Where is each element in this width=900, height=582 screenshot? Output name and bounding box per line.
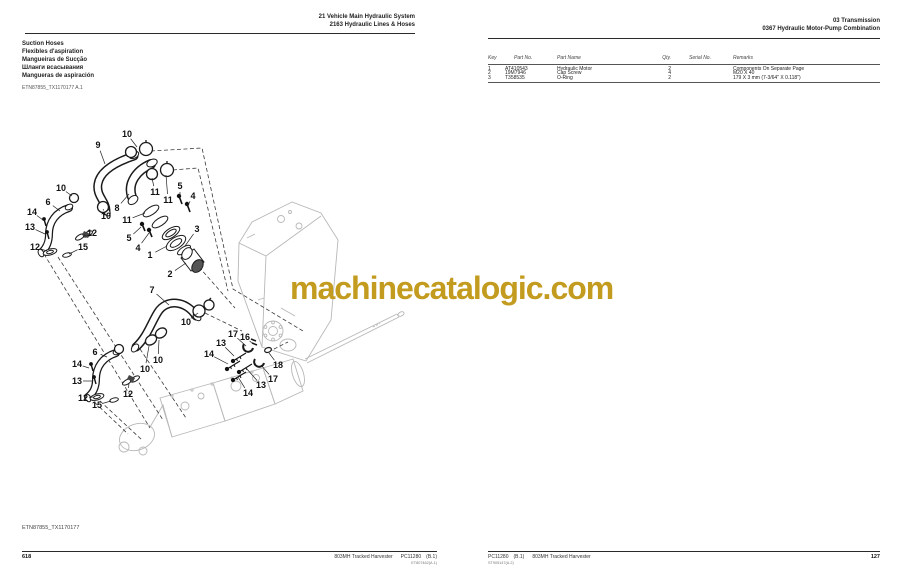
callout-leader bbox=[166, 175, 168, 194]
right-page-number: 127 bbox=[488, 554, 880, 560]
callout-number: 3 bbox=[194, 224, 199, 234]
callout-number: 7 bbox=[149, 285, 154, 295]
cell-remarks: 179 X 3 mm (7-3/64" X 0.118") bbox=[729, 76, 880, 81]
footer-model: 803MH Tracked Harvester bbox=[334, 554, 392, 560]
header-rule bbox=[25, 33, 415, 34]
callout-number: 10 bbox=[101, 211, 111, 221]
right-footer-subref: ST905147(A.2) bbox=[488, 561, 514, 565]
callout-leader bbox=[35, 230, 45, 234]
callout-leader bbox=[37, 216, 43, 220]
parts-table-rows: 1AT410543Hydraulic Motor2Components On S… bbox=[488, 64, 880, 83]
callout-leader bbox=[155, 246, 167, 252]
figure-title-ru: Шланги всасывания bbox=[22, 64, 94, 72]
footer-revision: (B.1) bbox=[426, 554, 437, 560]
callout-number: 10 bbox=[122, 129, 132, 139]
callout-number: 16 bbox=[240, 332, 250, 342]
callout-number: 13 bbox=[256, 380, 266, 390]
left-footer-rule bbox=[22, 551, 437, 552]
left-footer-line: 803MH Tracked HarvesterPC11280(B.1) bbox=[22, 554, 437, 560]
callout-number: 15 bbox=[78, 242, 88, 252]
callout-number: 17 bbox=[228, 329, 238, 339]
figure-title-fr: Flexibles d'aspiration bbox=[22, 48, 94, 56]
callout-number: 9 bbox=[95, 140, 100, 150]
callout-number: 11 bbox=[122, 215, 132, 225]
callout-leader bbox=[185, 234, 194, 246]
watermark: machinecatalogic.com bbox=[290, 270, 613, 307]
callout-number: 12 bbox=[123, 389, 133, 399]
callout-number: 14 bbox=[27, 207, 37, 217]
callout-leader bbox=[142, 233, 149, 243]
callout-leader bbox=[131, 139, 137, 147]
col-remarks: Remarks bbox=[729, 55, 880, 61]
callout-leader bbox=[175, 263, 186, 271]
fittings-and-fasteners bbox=[42, 195, 272, 403]
header-rule bbox=[488, 38, 880, 39]
callout-number: 10 bbox=[56, 183, 66, 193]
figure-reference-bottom: ETN87855_TX1170177 bbox=[22, 525, 79, 531]
parts-table: Key Part No. Part Name Qty. Serial No. R… bbox=[488, 55, 880, 83]
callout-number: 13 bbox=[72, 376, 82, 386]
callout-leader bbox=[83, 366, 89, 368]
right-footer-rule bbox=[488, 551, 880, 552]
subsection-title: 0367 Hydraulic Motor-Pump Combination bbox=[488, 25, 880, 33]
figure-title-es: Mangueras de aspiración bbox=[22, 72, 94, 80]
right-page-header: 03 Transmission 0367 Hydraulic Motor-Pum… bbox=[488, 17, 880, 33]
col-part-no: Part No. bbox=[505, 55, 557, 61]
callout-leader bbox=[158, 340, 159, 354]
callout-number: 14 bbox=[204, 349, 214, 359]
footer-catalog: PC11280 bbox=[401, 554, 421, 560]
callout-number: 10 bbox=[181, 317, 191, 327]
callout-number: 8 bbox=[114, 203, 119, 213]
figure-title-en: Suction Hoses bbox=[22, 40, 94, 48]
callout-number: 18 bbox=[273, 360, 283, 370]
callout-number: 12 bbox=[78, 393, 88, 403]
subsection-title: 2163 Hydraulic Lines & Hoses bbox=[25, 21, 415, 29]
table-row: 3T358535O-Ring2179 X 3 mm (7-3/64" X 0.1… bbox=[488, 76, 880, 81]
callout-number: 12 bbox=[30, 242, 40, 252]
callout-number: 14 bbox=[72, 359, 82, 369]
callout-number: 11 bbox=[163, 195, 173, 205]
cell-key: 3 bbox=[488, 76, 505, 81]
col-part-name: Part Name bbox=[557, 55, 657, 61]
callout-leader bbox=[133, 227, 141, 234]
callout-number: 5 bbox=[177, 181, 182, 191]
figure-reference: ETN87855_TX1170177 A.1 bbox=[22, 84, 94, 92]
callout-number: 1 bbox=[147, 250, 152, 260]
cell-part-name: O-Ring bbox=[557, 76, 657, 81]
callout-number: 4 bbox=[135, 243, 140, 253]
callout-number: 13 bbox=[25, 222, 35, 232]
section-title: 21 Vehicle Main Hydraulic System bbox=[25, 13, 415, 21]
callout-number: 6 bbox=[92, 347, 97, 357]
callout-leader bbox=[69, 250, 78, 254]
figure-title-block: Suction Hoses Flexibles d'aspiration Man… bbox=[22, 40, 94, 92]
callout-number: 5 bbox=[126, 233, 131, 243]
section-title: 03 Transmission bbox=[488, 17, 880, 25]
callout-number: 6 bbox=[45, 197, 50, 207]
callout-leader bbox=[225, 347, 234, 356]
parts-table-header: Key Part No. Part Name Qty. Serial No. R… bbox=[488, 55, 880, 64]
callout-number: 10 bbox=[153, 355, 163, 365]
cell-qty: 2 bbox=[657, 76, 671, 81]
callout-number: 2 bbox=[167, 269, 172, 279]
figure-title-pt: Mangueiras de Sucção bbox=[22, 56, 94, 64]
callout-number: 14 bbox=[243, 388, 253, 398]
callout-number: 17 bbox=[268, 374, 278, 384]
callout-leader bbox=[214, 357, 228, 364]
cell-part-no: T358535 bbox=[505, 76, 557, 81]
col-key: Key bbox=[488, 55, 505, 61]
col-qty: Qty. bbox=[657, 55, 671, 61]
left-footer-subref: ET807462(A.1) bbox=[22, 561, 437, 565]
callout-number: 11 bbox=[150, 187, 160, 197]
callout-number: 13 bbox=[216, 338, 226, 348]
col-serial-no: Serial No. bbox=[671, 55, 729, 61]
callout-number: 4 bbox=[190, 191, 195, 201]
left-page-header: 21 Vehicle Main Hydraulic System 2163 Hy… bbox=[25, 13, 415, 29]
callout-number: 15 bbox=[92, 400, 102, 410]
callout-number: 10 bbox=[140, 364, 150, 374]
callout-leader bbox=[100, 151, 105, 164]
callout-number: 12 bbox=[87, 228, 97, 238]
cell-serial-no bbox=[671, 76, 729, 81]
